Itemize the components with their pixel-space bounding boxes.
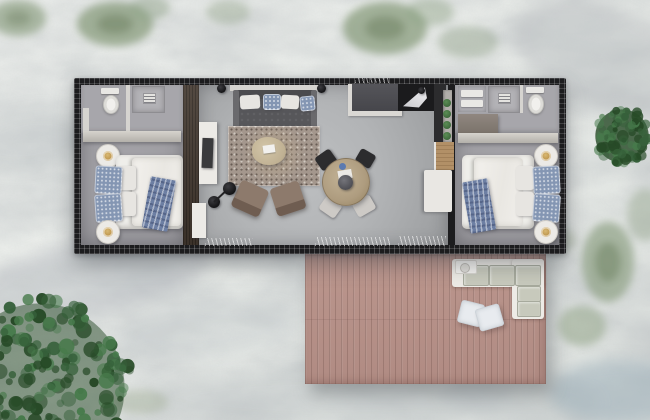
outdoor-sofa-cushion — [517, 286, 541, 302]
sofa-cushion — [263, 94, 281, 110]
shower — [132, 86, 165, 113]
sofa — [233, 90, 317, 127]
wooden-worktop — [434, 142, 454, 170]
toilet — [101, 88, 119, 94]
outdoor-sofa-cushion — [489, 265, 515, 286]
tree-foliage-dot — [83, 368, 91, 376]
cabin — [74, 78, 566, 254]
grass-patch-core — [5, 10, 31, 26]
tree-foliage-dot — [107, 360, 115, 368]
patterned-pillow — [94, 193, 123, 223]
tree-foliage-dot — [31, 349, 43, 361]
tree-foliage-dot — [609, 112, 615, 118]
tree-foliage-dot — [628, 121, 636, 129]
tree-foliage-dot — [23, 294, 34, 305]
kitchen-counter-dark — [352, 84, 398, 111]
tree-foliage-dot — [75, 388, 88, 401]
tree-foliage-dot — [608, 133, 616, 141]
green-jar — [443, 132, 451, 140]
sofa-cushion — [299, 95, 315, 111]
tree-foliage-dot — [4, 302, 16, 314]
tree-foliage-dot — [57, 400, 65, 408]
tree-foliage-dot — [596, 134, 605, 143]
shower — [488, 86, 520, 113]
tree-foliage-dot — [60, 377, 71, 388]
kitchen-island — [424, 170, 452, 212]
dining-table — [322, 158, 370, 206]
tree-foliage-dot — [639, 137, 648, 146]
vent-marks — [355, 78, 391, 83]
pillow — [516, 192, 534, 216]
tree-foliage-dot — [614, 118, 622, 126]
floor-plan-scene — [0, 0, 650, 420]
nightstand — [534, 220, 558, 244]
tree-foliage-dot — [118, 383, 128, 393]
floor-cushion — [474, 303, 504, 332]
sofa-cushion — [240, 94, 261, 109]
patterned-pillow — [532, 165, 560, 194]
towel — [461, 90, 483, 97]
sofa-armrest — [233, 90, 239, 127]
nightstand — [534, 144, 558, 168]
toilet-bowl — [103, 95, 119, 114]
window-reflection — [205, 238, 253, 246]
tree-foliage-dot — [599, 114, 605, 120]
tree-foliage-dot — [618, 135, 628, 145]
tree-foliage-dot — [638, 128, 644, 134]
grass-patch — [438, 26, 498, 58]
wooden-deck — [305, 253, 546, 384]
tree-foliage-dot — [636, 150, 646, 160]
tree-foliage-dot — [83, 342, 99, 358]
grass-patch-core — [97, 14, 133, 34]
tv — [201, 138, 213, 168]
tree-foliage-dot — [68, 319, 75, 326]
pendant-light — [217, 84, 226, 93]
tree-foliage-dot — [0, 328, 8, 336]
tree-foliage-dot — [77, 407, 85, 415]
tree-foliage-dot — [24, 364, 32, 372]
nightstand — [96, 220, 120, 244]
tree-foliage-dot — [114, 358, 127, 371]
table-lamp — [541, 227, 551, 237]
tree-foliage-dot — [612, 159, 619, 166]
tree-foliage-dot — [99, 373, 115, 389]
cooktop — [398, 84, 434, 111]
table-lamp — [103, 151, 113, 161]
tree-foliage-dot — [617, 150, 626, 159]
grass-patch — [206, 0, 250, 24]
pillow — [516, 166, 534, 190]
tree-foliage-dot — [24, 312, 34, 322]
tree-foliage-dot — [113, 351, 119, 357]
floor-lamp-shade — [223, 182, 236, 195]
pendant-light — [317, 84, 326, 93]
closet-left — [83, 108, 89, 133]
sofa-cushion — [281, 95, 300, 110]
patterned-pillow — [94, 165, 122, 194]
tree-foliage-dot — [39, 366, 46, 373]
shower-drain — [498, 93, 511, 104]
shower-drain — [143, 93, 156, 104]
towel-shelf — [458, 86, 486, 112]
tree-foliage-dot — [627, 141, 635, 149]
tree-foliage-dot — [1, 411, 10, 420]
tree-foliage-dot — [43, 317, 55, 329]
tree-foliage-dot — [594, 119, 604, 129]
tree-foliage-dot — [71, 302, 86, 317]
tree-foliage-dot — [103, 336, 117, 350]
tree-foliage-dot — [613, 127, 618, 132]
table-lamp — [103, 227, 113, 237]
toilet-bowl — [528, 94, 544, 114]
outdoor-side-table — [455, 260, 477, 274]
grass-patch-core — [365, 16, 405, 40]
tree-foliage-dot — [621, 113, 629, 121]
tree-foliage-dot — [89, 378, 98, 387]
grass-patch-core — [595, 242, 621, 282]
tree-foliage-dot — [14, 316, 24, 326]
tree-foliage-dot — [608, 140, 616, 148]
tree-foliage-dot — [61, 363, 70, 372]
grass-patch — [558, 306, 606, 346]
storage-cabinet — [192, 203, 206, 238]
wall-shelf — [458, 133, 558, 143]
green-jar — [443, 110, 451, 118]
bathroom-right-divider-wall — [520, 85, 523, 113]
kettle-icon — [460, 263, 470, 273]
tree-foliage-dot — [24, 373, 36, 385]
tree-foliage-dot — [117, 396, 123, 402]
wall-shelf — [83, 131, 181, 142]
hood-center — [418, 87, 425, 94]
patterned-pillow — [532, 193, 561, 223]
green-jar — [443, 121, 451, 129]
table-lamp — [541, 151, 551, 161]
tree-foliage-dot — [94, 409, 101, 416]
tree-foliage-dot — [42, 383, 56, 397]
tree-foliage-dot — [19, 337, 29, 347]
bathroom-left-divider-wall — [126, 85, 130, 132]
tree-foliage-dot — [26, 324, 34, 332]
tree-foliage-dot — [68, 353, 77, 362]
tree — [594, 106, 650, 167]
green-jar — [443, 99, 451, 107]
dresser — [458, 114, 498, 133]
toilet — [526, 87, 544, 93]
tree-foliage-dot — [41, 294, 56, 309]
window-reflection — [398, 236, 446, 246]
outdoor-sofa-cushion — [517, 301, 541, 317]
outdoor-sofa-cushion — [515, 265, 541, 286]
centerpiece — [338, 175, 353, 190]
tree-foliage-dot — [47, 342, 61, 356]
sideboard — [199, 122, 217, 184]
book — [263, 144, 276, 154]
tree-foliage-dot — [6, 378, 13, 385]
tree-foliage-dot — [9, 371, 16, 378]
coffee-table — [252, 137, 286, 165]
blue-bowl — [339, 163, 346, 170]
tree-foliage-dot — [99, 390, 114, 405]
window-reflection — [315, 237, 390, 246]
towel — [461, 100, 483, 107]
tree-foliage-dot — [1, 335, 13, 347]
tree-foliage-dot — [59, 339, 75, 355]
